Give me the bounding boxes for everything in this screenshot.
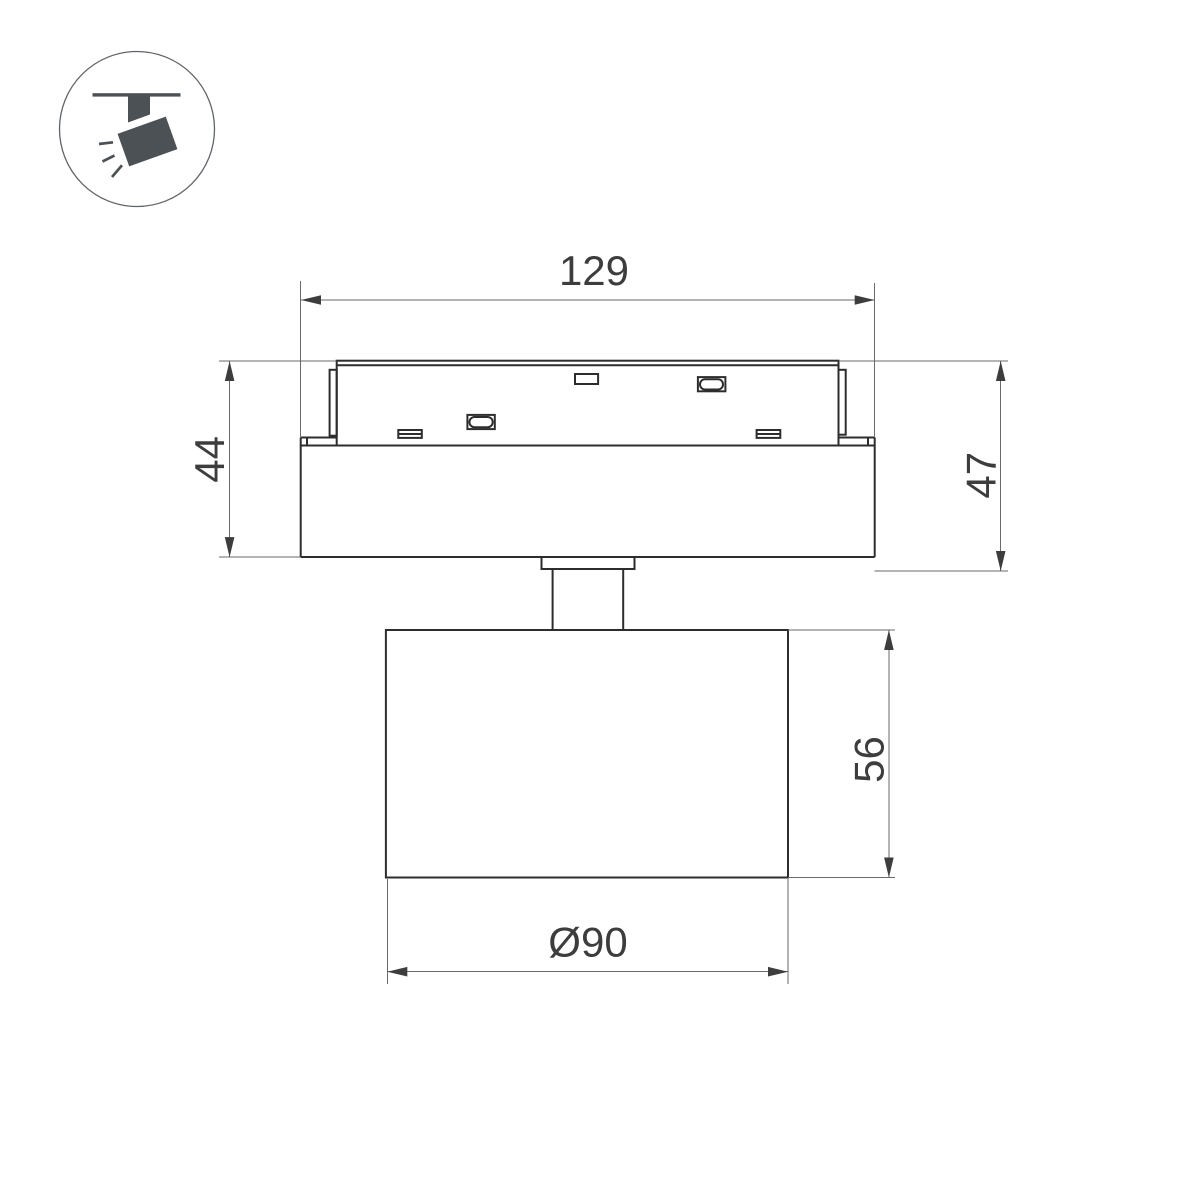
svg-text:44: 44 xyxy=(186,436,233,483)
svg-text:56: 56 xyxy=(846,736,893,783)
svg-text:Ø90: Ø90 xyxy=(548,919,627,966)
svg-text:129: 129 xyxy=(559,247,629,294)
svg-text:47: 47 xyxy=(958,452,1005,499)
